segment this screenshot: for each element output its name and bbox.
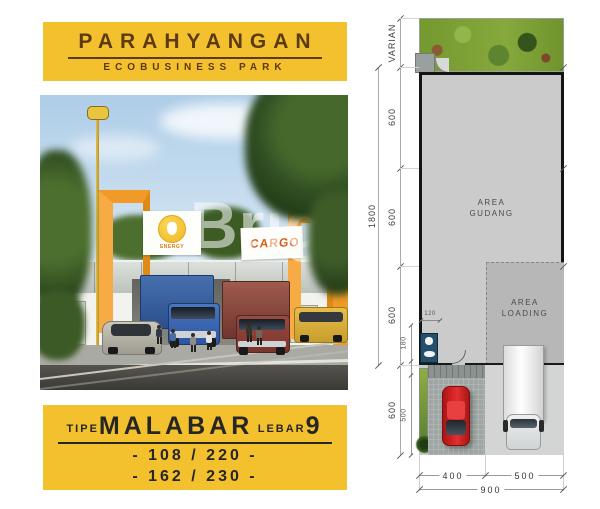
white-truck-cab — [506, 414, 541, 450]
person — [206, 331, 212, 350]
area-gudang-label: AREA GUDANG — [419, 197, 564, 219]
type-title-line: TIPEMALABAR LEBAR9 — [58, 412, 331, 444]
person — [190, 333, 196, 352]
silver-car — [102, 321, 162, 355]
brand-title: PARAHYANGAN — [68, 30, 321, 59]
sink-fixture — [424, 351, 435, 357]
dim-tick — [560, 486, 567, 493]
energy-logo-icon — [158, 215, 186, 243]
person — [246, 323, 252, 342]
dim-label-120: 120 — [424, 311, 436, 317]
bush-foreground — [40, 290, 85, 360]
tree-foreground — [308, 185, 348, 295]
blue-truck-windshield — [171, 307, 215, 319]
maroon-truck-wheel — [276, 347, 285, 355]
spec-line-1: - 108 / 220 - — [43, 447, 347, 465]
dim-label-500: 500 — [511, 471, 538, 481]
dim-tick — [409, 453, 414, 458]
white-truck-trailer — [503, 345, 544, 421]
yellow-van-wheel — [333, 335, 342, 342]
tipe-label: TIPE — [66, 423, 98, 435]
extension-line — [400, 266, 419, 267]
floor-plan: AREA GUDANG AREA LOADING VARIAN 600 600 … — [370, 0, 600, 509]
yellow-van-windows — [299, 312, 343, 322]
spec-line-2: - 162 / 230 - — [43, 468, 347, 486]
yellow-van-wheel — [300, 335, 309, 342]
extension-line — [400, 18, 419, 19]
toilet-fixture — [425, 337, 433, 345]
type-name: MALABAR — [99, 412, 253, 440]
white-truck-wheel — [503, 420, 508, 432]
silver-car-wheel — [108, 347, 118, 354]
silver-car-windows — [111, 324, 151, 336]
dim-label-varian: VARIAN — [387, 24, 397, 63]
extension-line — [400, 365, 419, 366]
dim-label-600: 600 — [387, 108, 397, 126]
dim-label-500v: 500 — [401, 408, 408, 421]
extension-line — [400, 67, 419, 68]
dim-label-900: 900 — [477, 485, 504, 495]
type-footer: TIPEMALABAR LEBAR9 - 108 / 220 - - 162 /… — [43, 405, 347, 490]
lebar-label: LEBAR — [258, 423, 306, 435]
extension-line — [400, 168, 419, 169]
yellow-van — [294, 307, 348, 343]
area-loading-label: AREA LOADING — [486, 297, 564, 319]
street-lamp-pole — [96, 115, 99, 353]
red-car — [442, 386, 470, 446]
white-truck-wheel — [539, 420, 544, 432]
maroon-truck-wheel — [239, 347, 248, 355]
dim-label-600: 600 — [387, 306, 397, 324]
building-render: ENERGY CARGO — [40, 95, 348, 390]
street-lamp-head — [87, 106, 109, 120]
dim-label-600: 600 — [387, 208, 397, 226]
paving-step — [428, 365, 485, 378]
dim-label-600: 600 — [387, 401, 397, 419]
cloud — [70, 135, 160, 161]
dim-tick — [397, 452, 404, 459]
person — [256, 326, 262, 345]
red-car-windshield — [446, 420, 466, 435]
white-truck-windshield — [510, 419, 537, 428]
dim-tick — [375, 362, 382, 369]
brand-subtitle: ECOBUSINESS PARK — [43, 62, 347, 73]
lebar-value: 9 — [306, 412, 324, 440]
dim-label-180: 180 — [401, 336, 408, 349]
maroon-truck — [222, 281, 302, 353]
dimension-line-detail — [411, 325, 412, 455]
bathroom — [420, 333, 438, 363]
planter-strip — [419, 368, 428, 443]
gate-structure — [415, 53, 435, 73]
lion-glyph-icon — [167, 222, 177, 235]
person — [170, 329, 176, 348]
silver-car-wheel — [145, 347, 155, 354]
dimension-line-left-inner — [400, 18, 401, 455]
dimension-line-left-outer — [378, 67, 379, 365]
dim-label-400: 400 — [439, 471, 466, 481]
brand-header: PARAHYANGAN ECOBUSINESS PARK — [43, 22, 347, 81]
person — [156, 325, 162, 344]
dim-label-1800: 1800 — [367, 204, 377, 228]
